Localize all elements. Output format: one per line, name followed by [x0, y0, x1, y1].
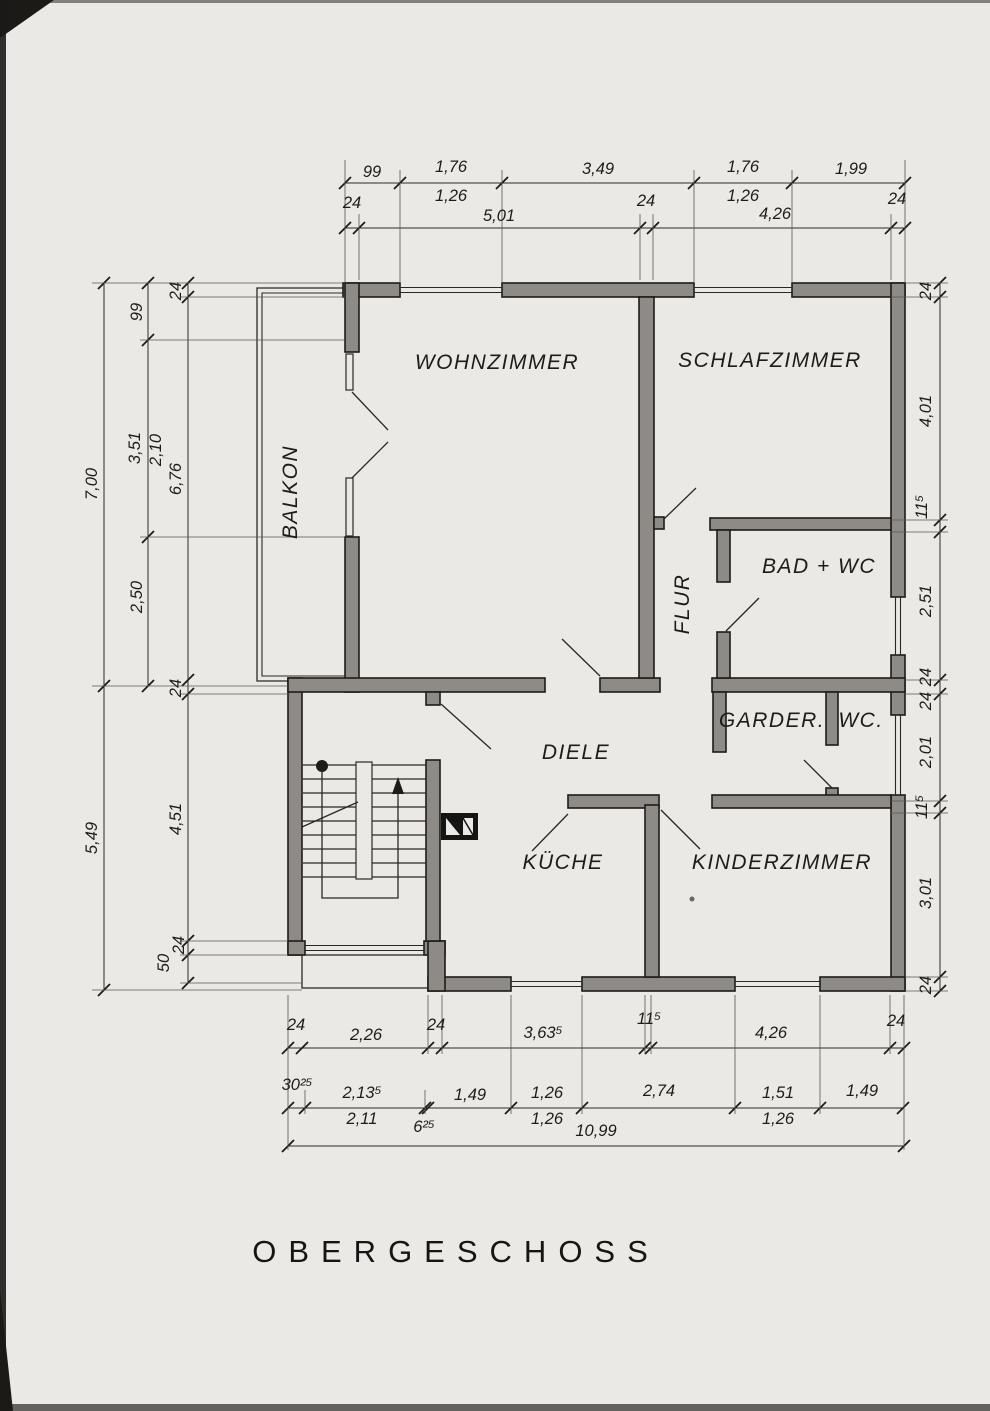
dim-label: 99: [128, 303, 146, 321]
wall-segment: [717, 530, 730, 582]
dim-label: 2,51: [917, 585, 935, 618]
bad-door-swing: [726, 598, 759, 631]
window-right-wc: [896, 715, 901, 795]
stair-door-swing: [441, 704, 491, 749]
window-bottom-kueche: [511, 982, 582, 987]
dim-label: 24: [342, 194, 361, 212]
dim-label: 7,00: [83, 467, 101, 500]
room-label-diele: DIELE: [542, 741, 610, 764]
room-label-wc: WC.: [838, 709, 883, 732]
wall-segment: [710, 518, 891, 530]
dim-label: 24: [636, 192, 655, 210]
room-label-balkon: BALKON: [279, 445, 302, 539]
dim-label: 1,26: [531, 1084, 564, 1102]
wall-segment: [717, 632, 730, 678]
wall-segment: [712, 795, 891, 808]
dim-label: 2,26: [349, 1026, 383, 1044]
dim-label: 1,26: [435, 187, 468, 205]
dim-label: 24: [917, 282, 935, 301]
dim-label: 5,01: [483, 207, 515, 225]
dim-label: 1,51: [762, 1084, 794, 1102]
exterior-walls: [288, 283, 905, 991]
dim-label: 24: [917, 692, 935, 711]
wall-segment: [345, 283, 359, 352]
dim-label: 4,01: [917, 395, 935, 427]
windows: [305, 288, 901, 987]
wall-segment: [426, 760, 440, 941]
dim-label: 24: [167, 282, 185, 301]
dim-label: 30²⁵: [282, 1076, 313, 1094]
stair-walkline-start: [316, 760, 328, 772]
dimension-labels-left: 7,00 5,49 99 3,51 2,10 2,50 24 6,76 24 4…: [83, 282, 188, 972]
room-label-kinderzimmer: KINDERZIMMER: [692, 851, 872, 874]
dim-label: 3,01: [917, 877, 935, 909]
room-label-kueche: KÜCHE: [522, 851, 603, 874]
dim-label: 2,11: [346, 1110, 378, 1128]
window-stairwell: [305, 946, 424, 951]
wall-segment: [600, 678, 660, 692]
room-label-schlafzimmer: SCHLAFZIMMER: [678, 349, 862, 372]
scanned-floorplan-page: 99 1,76 1,26 3,49 1,76 1,26 1,99 24 5,01…: [0, 0, 990, 1411]
dim-label: 1,26: [762, 1110, 795, 1128]
balcony-door-swing: [352, 442, 388, 478]
window-bottom-kinderzimmer: [735, 982, 820, 987]
dim-label: 24: [426, 1016, 445, 1034]
room-label-flur: FLUR: [671, 574, 694, 635]
kueche-door-swing: [532, 814, 568, 851]
dimension-lines: [104, 183, 940, 1146]
wall-segment: [288, 678, 545, 692]
wall-segment: [502, 283, 694, 297]
window-top-right: [694, 288, 792, 293]
dim-label: 24: [167, 679, 185, 698]
wall-segment: [428, 941, 445, 991]
floorplan-drawing: 99 1,76 1,26 3,49 1,76 1,26 1,99 24 5,01…: [0, 0, 990, 1411]
wall-segment: [792, 283, 905, 297]
wall-segment: [345, 537, 359, 692]
dim-label: 2,74: [642, 1082, 675, 1100]
balcony-door-leaf: [346, 354, 353, 390]
dimension-labels-right: 24 4,01 11⁵ 2,51 24 24 2,01 11⁵ 3,01 24: [913, 282, 935, 995]
dim-label: 24: [886, 1012, 905, 1030]
dim-label: 4,26: [759, 205, 792, 223]
window-right-bad: [896, 597, 901, 655]
balcony-door-swing: [352, 392, 388, 430]
dim-label: 5,49: [83, 822, 101, 854]
dim-label: 6,76: [167, 462, 185, 495]
wall-segment: [639, 297, 654, 678]
dim-label: 1,76: [435, 158, 468, 176]
wall-segment: [891, 795, 905, 991]
dim-label: 6²⁵: [413, 1118, 435, 1136]
wall-segment: [288, 678, 302, 955]
wall-segment: [891, 283, 905, 597]
dim-label: 24: [917, 668, 935, 687]
dim-label: 2,13⁵: [341, 1084, 381, 1102]
room-label-wohnzimmer: WOHNZIMMER: [415, 351, 579, 374]
entrance-porch-outline: [302, 955, 428, 988]
dim-label: 2,10: [147, 433, 165, 467]
wall-segment: [654, 517, 664, 529]
wall-segment: [712, 678, 905, 692]
dimension-labels-bottom: 24 2,26 24 3,63⁵ 11⁵ 4,26 24 30²⁵ 2,13⁵ …: [282, 1010, 906, 1140]
dim-label: 24: [286, 1016, 305, 1034]
dim-label: 11⁵: [913, 495, 931, 519]
kinderzimmer-door-swing: [661, 810, 700, 849]
dim-label: 11⁵: [913, 795, 931, 819]
dim-label: 1,26: [531, 1110, 564, 1128]
wall-segment: [820, 977, 905, 991]
dim-label: 2,01: [917, 736, 935, 769]
chimney-shaft-icon: [441, 813, 478, 840]
dim-label: 4,51: [167, 803, 185, 835]
wall-segment: [826, 692, 838, 745]
dim-label: 4,26: [755, 1024, 788, 1042]
dim-label: 1,26: [727, 187, 760, 205]
schlafzimmer-door-swing: [664, 488, 696, 519]
dim-label: 99: [363, 163, 381, 181]
stair-break-line: [302, 802, 358, 827]
dim-label: 1,49: [454, 1086, 486, 1104]
dim-label: 3,51: [126, 432, 144, 464]
wc-door-swing: [804, 760, 832, 788]
wohnzimmer-door-swing: [562, 639, 600, 676]
dim-label: 50: [155, 953, 173, 972]
room-label-bad-wc: BAD + WC: [762, 555, 876, 578]
dim-label-total-width: 10,99: [575, 1122, 616, 1140]
wall-segment: [426, 692, 440, 705]
witness-lines: [92, 160, 948, 1150]
dimension-ticks: [98, 177, 946, 1152]
dim-label: 3,49: [582, 160, 614, 178]
dimension-labels-top: 99 1,76 1,26 3,49 1,76 1,26 1,99 24 5,01…: [342, 158, 906, 225]
doors: [346, 354, 832, 851]
paper-blemish: [690, 897, 695, 902]
balcony-door-leaf: [346, 478, 353, 536]
window-top-left: [400, 288, 502, 293]
page-title: OBERGESCHOSS: [252, 1234, 660, 1269]
dim-label: 11⁵: [637, 1010, 661, 1028]
staircase: [302, 760, 426, 898]
wall-segment: [582, 977, 735, 991]
dim-label: 1,49: [846, 1082, 878, 1100]
stair-newel: [356, 762, 372, 879]
dim-label: 1,76: [727, 158, 760, 176]
dim-label: 24: [887, 190, 906, 208]
dim-label: 24: [170, 936, 188, 955]
dim-label: 3,63⁵: [523, 1024, 562, 1042]
wall-segment: [288, 941, 305, 955]
dim-label: 24: [917, 976, 935, 995]
room-label-garderobe: GARDER.: [719, 709, 825, 732]
interior-walls: [288, 297, 905, 977]
dim-label: 2,50: [128, 580, 146, 614]
dim-label: 1,99: [835, 160, 867, 178]
wall-segment: [645, 805, 659, 977]
